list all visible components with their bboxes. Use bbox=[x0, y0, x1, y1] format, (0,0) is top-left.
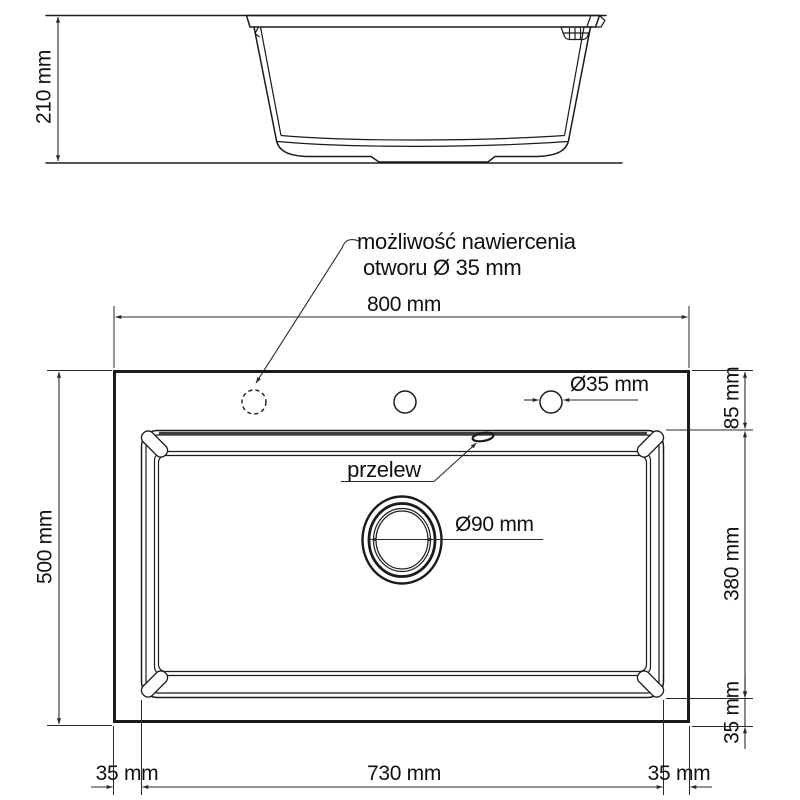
bowl-wall-left-outer bbox=[254, 27, 276, 138]
sink-technical-drawing: 210 mm możliwość nawiercenia otworu Ø 35… bbox=[0, 0, 800, 800]
dimension-85: 85 mm bbox=[666, 367, 753, 430]
overflow-callout: przelew bbox=[341, 431, 494, 482]
optional-drill-hole bbox=[242, 390, 266, 414]
side-height-label: 210 mm bbox=[33, 50, 56, 124]
bowl-wall-left-inner bbox=[261, 27, 282, 136]
sink-rim-profile bbox=[247, 16, 600, 28]
plan-view: 800 mm Ø35 mm bbox=[34, 293, 754, 795]
bowl-floor-edge bbox=[155, 452, 651, 676]
bowl-corner-facet-br bbox=[635, 668, 666, 699]
bowl-bottom-outer-shell bbox=[276, 138, 569, 162]
drain: Ø90 mm bbox=[363, 497, 544, 584]
sink-outline bbox=[115, 372, 689, 722]
bowl-depth-label: 380 mm bbox=[721, 527, 744, 601]
bowl-bottom-mid-line bbox=[278, 142, 568, 147]
side-view: 210 mm bbox=[33, 16, 623, 164]
bowl-corner-facet-bl bbox=[139, 668, 170, 699]
bowl-wall-right-inner bbox=[565, 27, 585, 136]
drill-note-line2: otworu Ø 35 mm bbox=[363, 255, 521, 280]
faucet-hole-diameter-label: Ø35 mm bbox=[570, 373, 649, 396]
dimension-35-right-side: 35 mm bbox=[692, 676, 753, 749]
drill-note-leader bbox=[256, 240, 359, 383]
overflow-fitting bbox=[561, 27, 591, 40]
overall-depth-label: 500 mm bbox=[34, 510, 57, 584]
bottom-left-margin-label: 35 mm bbox=[96, 762, 159, 785]
dimension-210: 210 mm bbox=[33, 17, 59, 161]
dimension-500: 500 mm bbox=[34, 371, 113, 726]
bowl-bottom-inner-line bbox=[281, 136, 565, 141]
rim-right-edge-line bbox=[587, 17, 591, 27]
bowl-width-label: 730 mm bbox=[367, 762, 441, 785]
dimension-380: 380 mm bbox=[666, 432, 753, 699]
dimension-bottom-row: 35 mm 730 mm 35 mm bbox=[91, 700, 712, 795]
faucet-hole-center bbox=[394, 391, 416, 413]
drain-diameter-label: Ø90 mm bbox=[455, 513, 534, 536]
faucet-hole-right bbox=[540, 391, 562, 413]
dimension-800: 800 mm bbox=[114, 293, 689, 368]
rim-to-bowl-label: 85 mm bbox=[721, 367, 744, 430]
bowl-wall-right-outer bbox=[569, 27, 591, 138]
drill-note-line1: możliwość nawiercenia bbox=[357, 229, 577, 254]
bowl-to-edge-label: 35 mm bbox=[721, 681, 744, 744]
overall-width-label: 800 mm bbox=[367, 293, 441, 316]
bowl-floor-edge-inner-line bbox=[159, 456, 647, 672]
overflow-label: przelew bbox=[347, 457, 421, 482]
drawing-canvas: 210 mm możliwość nawiercenia otworu Ø 35… bbox=[0, 0, 800, 800]
bottom-right-margin-label: 35 mm bbox=[648, 762, 711, 785]
